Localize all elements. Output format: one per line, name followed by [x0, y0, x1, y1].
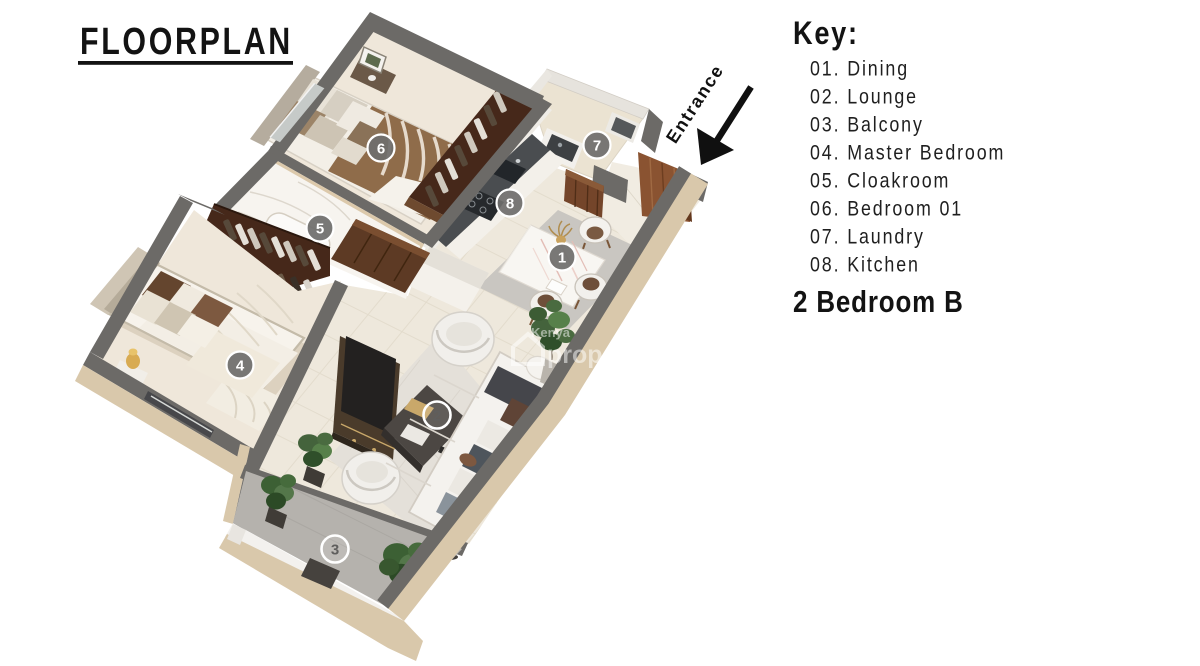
svg-text:07. Laundry: 07. Laundry [810, 225, 925, 249]
svg-text:02. Lounge: 02. Lounge [810, 85, 918, 109]
svg-text:FLOORPLAN: FLOORPLAN [80, 21, 293, 63]
svg-text:4: 4 [236, 358, 245, 375]
svg-text:Key:: Key: [793, 16, 859, 52]
svg-text:04. Master Bedroom: 04. Master Bedroom [810, 141, 1005, 165]
svg-text:8: 8 [506, 196, 514, 213]
svg-text:Kenya: Kenya [531, 325, 571, 340]
svg-text:06. Bedroom 01: 06. Bedroom 01 [810, 197, 963, 221]
svg-text:03. Balcony: 03. Balcony [810, 113, 924, 137]
svg-text:7: 7 [593, 138, 601, 155]
svg-text:01. Dining: 01. Dining [810, 57, 909, 81]
svg-text:6: 6 [377, 141, 385, 158]
svg-text:1: 1 [558, 250, 566, 267]
svg-text:08. Kitchen: 08. Kitchen [810, 253, 920, 277]
svg-text:3: 3 [331, 542, 339, 559]
svg-text:5: 5 [316, 221, 324, 238]
svg-text:2: 2 [433, 408, 441, 425]
svg-text:propert: propert [547, 341, 635, 369]
svg-text:05. Cloakroom: 05. Cloakroom [810, 169, 950, 193]
svg-text:2 Bedroom B: 2 Bedroom B [793, 284, 964, 318]
